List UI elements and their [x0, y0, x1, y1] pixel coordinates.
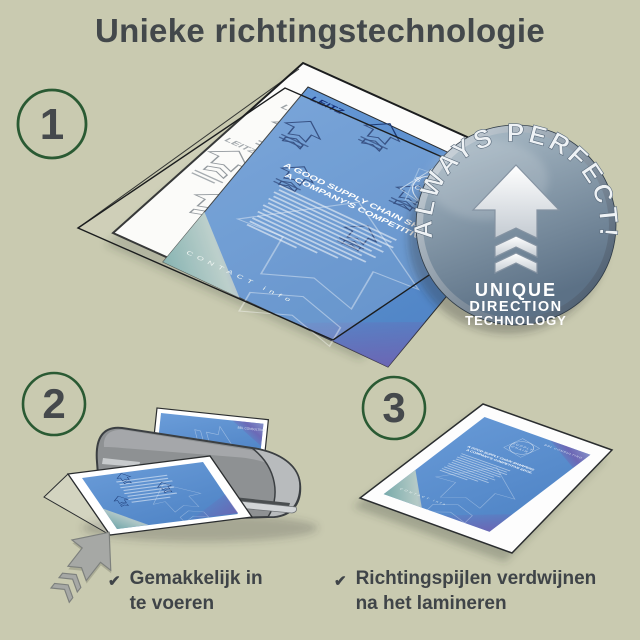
caption-arrows-disappear: ✔ Richtingspijlen verdwijnen na het lami… — [334, 566, 596, 616]
step-3-number: 3 — [382, 384, 405, 431]
always-perfect-badge: ALWAYS PERFECT! UNIQUE DIRECTION TECHNOL… — [408, 117, 625, 334]
step-1-number: 1 — [40, 100, 64, 149]
step-3-marker: 3 — [363, 377, 425, 439]
step-2-marker: 2 — [23, 373, 85, 435]
caption-line: Gemakkelijk in — [130, 566, 263, 591]
step-2-number: 2 — [42, 380, 65, 427]
step-1-marker: 1 — [18, 90, 86, 158]
infographic-canvas: Unieke richtingstechnologie — [0, 0, 640, 640]
checkmark-icon: ✔ — [334, 569, 347, 594]
caption-line: na het lamineren — [356, 591, 597, 616]
caption-line: te voeren — [130, 591, 263, 616]
caption-arrows-disappear-text: Richtingspijlen verdwijnen na het lamine… — [356, 566, 597, 616]
caption-easy-feed-text: Gemakkelijk in te voeren — [130, 566, 263, 616]
caption-line: Richtingspijlen verdwijnen — [356, 566, 597, 591]
caption-easy-feed: ✔ Gemakkelijk in te voeren — [108, 566, 263, 616]
illustration-scene: LEITZ LEITZ LEITZ BBL CONSULTING — [0, 0, 640, 640]
badge-line-1: UNIQUE — [475, 280, 557, 300]
checkmark-icon: ✔ — [108, 569, 121, 594]
badge-line-3: TECHNOLOGY — [465, 313, 567, 328]
